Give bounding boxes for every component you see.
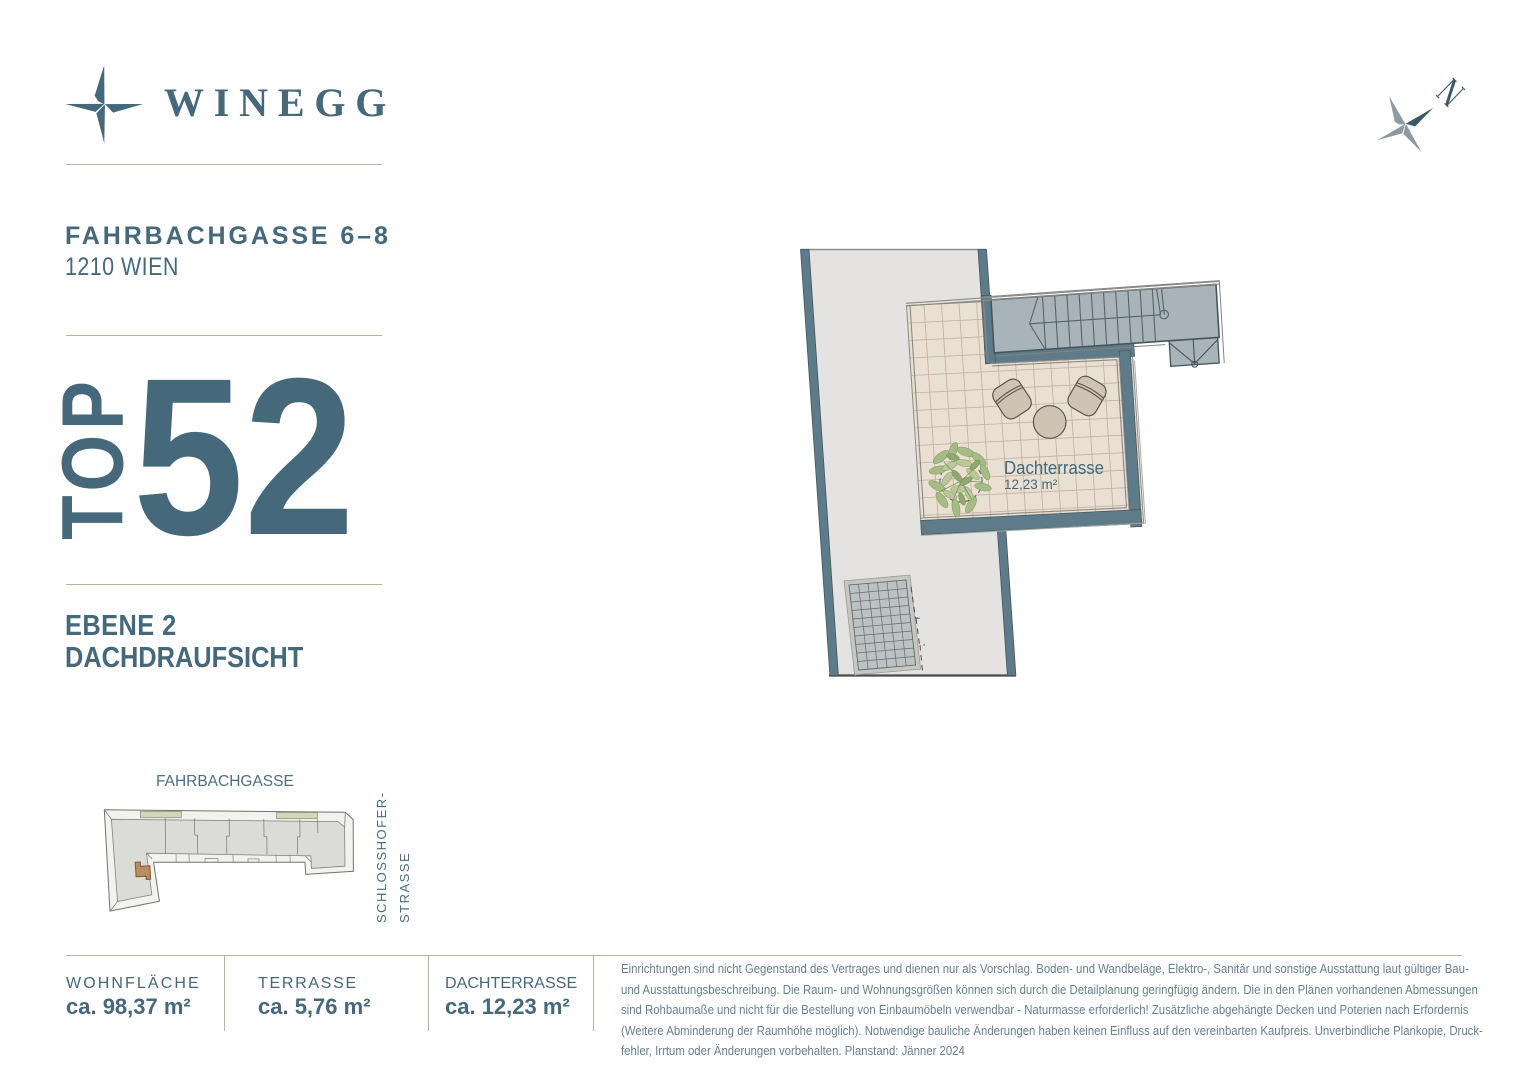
svg-text:Dachterrasse: Dachterrasse bbox=[1004, 457, 1104, 478]
svg-text:12,23 m²: 12,23 m² bbox=[1004, 477, 1058, 492]
